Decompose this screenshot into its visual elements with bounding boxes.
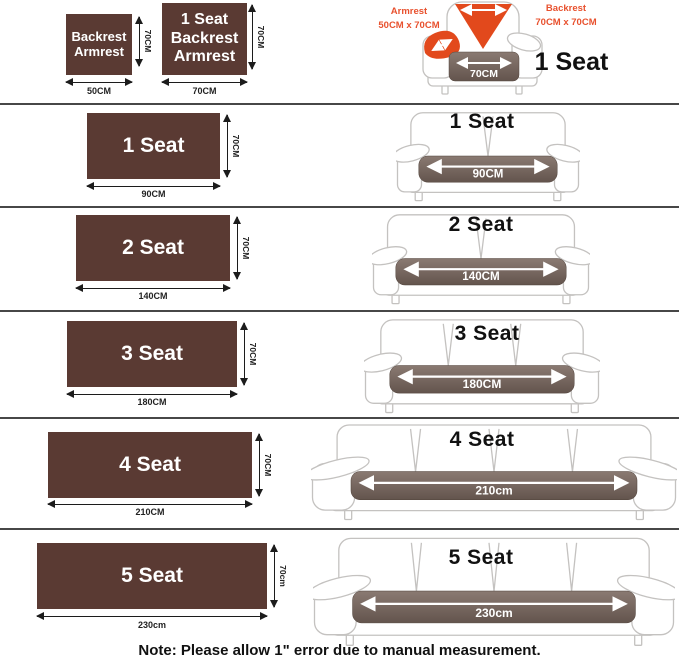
width-arrow: [87, 186, 220, 187]
swatch-label: 5 Seat: [121, 564, 183, 588]
measurement-note: Note: Please allow 1" error due to manua…: [0, 642, 679, 659]
swatch-5-seat: 5 Seat: [37, 543, 267, 609]
swatch-1seat-backrest-armrest: 1 Seat Backrest Armrest: [162, 3, 247, 75]
height-arrow: [274, 545, 275, 607]
height-arrow: [227, 115, 228, 177]
cushion-dimension: 70CM: [470, 68, 498, 80]
height-dimension: 70CM: [254, 19, 266, 55]
width-arrow: [37, 616, 267, 617]
width-dimension: 90CM: [77, 189, 230, 199]
width-arrow: [66, 82, 132, 83]
svg-text:140CM: 140CM: [462, 270, 499, 283]
svg-text:90CM: 90CM: [473, 169, 504, 181]
swatch-label: 1 Seat: [123, 134, 185, 158]
height-dimension: 70CM: [239, 230, 251, 266]
swatch-label: 1 Seat Backrest Armrest: [171, 11, 239, 66]
height-dimension: 70CM: [229, 128, 241, 164]
height-dimension: 70CM: [261, 447, 273, 483]
seat-count-title: 1 Seat: [514, 48, 629, 77]
row-divider: [0, 310, 679, 312]
width-dimension: 180CM: [57, 397, 247, 407]
seat-count-title: 2 Seat: [416, 213, 546, 237]
row-divider: [0, 103, 679, 105]
width-arrow: [162, 82, 247, 83]
svg-text:210cm: 210cm: [475, 484, 512, 498]
height-arrow: [259, 434, 260, 496]
row-divider: [0, 528, 679, 530]
width-dimension: 70CM: [157, 86, 252, 96]
row-divider: [0, 417, 679, 419]
height-dimension: 70CM: [141, 23, 153, 59]
width-arrow: [76, 288, 230, 289]
seat-count-title: 3 Seat: [422, 322, 552, 346]
width-dimension: 230cm: [27, 620, 277, 630]
height-dimension: 70CM: [246, 336, 258, 372]
seat-count-title: 4 Seat: [417, 428, 547, 452]
width-dimension: 140CM: [66, 291, 240, 301]
width-dimension: 50CM: [56, 86, 142, 96]
height-dimension: 70cm: [276, 558, 288, 594]
svg-text:230cm: 230cm: [475, 606, 512, 620]
swatch-label: 3 Seat: [121, 342, 183, 366]
swatch-backrest-armrest: Backrest Armrest: [66, 14, 132, 75]
swatch-label: Backrest Armrest: [72, 30, 127, 60]
seat-count-title: 5 Seat: [416, 546, 546, 570]
size-chart: Backrest Armrest 50CM 70CM 1 Seat Backre…: [0, 0, 679, 661]
height-arrow: [237, 217, 238, 279]
height-arrow: [252, 5, 253, 69]
swatch-4-seat: 4 Seat: [48, 432, 252, 498]
row-divider: [0, 206, 679, 208]
height-arrow: [244, 323, 245, 385]
width-dimension: 210CM: [38, 507, 262, 517]
swatch-2-seat: 2 Seat: [76, 215, 230, 281]
swatch-3-seat: 3 Seat: [67, 321, 237, 387]
width-arrow: [48, 504, 252, 505]
swatch-1-seat: 1 Seat: [87, 113, 220, 179]
width-arrow: [67, 394, 237, 395]
swatch-label: 2 Seat: [122, 236, 184, 260]
height-arrow: [139, 17, 140, 66]
swatch-label: 4 Seat: [119, 453, 181, 477]
svg-text:180CM: 180CM: [463, 377, 502, 391]
seat-count-title: 1 Seat: [417, 110, 547, 134]
